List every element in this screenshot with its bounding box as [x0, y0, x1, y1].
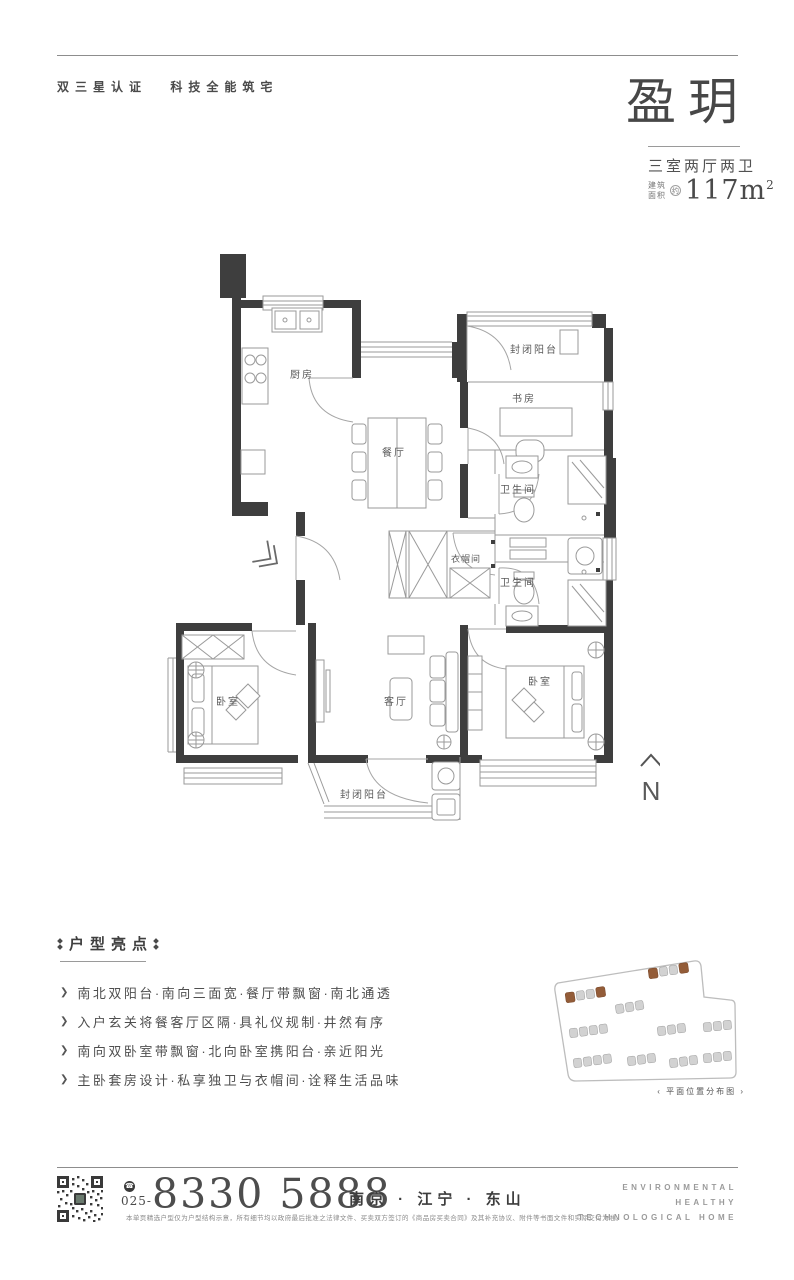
ornament-icon — [154, 939, 158, 949]
slogan-line: TECHNOLOGICAL HOME — [578, 1210, 737, 1225]
room-label-dining: 餐厅 — [382, 446, 406, 459]
dining-table — [352, 418, 442, 508]
area-row: 建筑 面积 约 117m2 — [648, 175, 775, 206]
slogan-block: ENVIRONMENTAL HEALTHY TECHNOLOGICAL HOME — [578, 1180, 737, 1225]
area-prefix: 建筑 面积 — [648, 181, 666, 201]
room-label-bedroom-right: 卧室 — [528, 675, 552, 688]
highlights-underline — [60, 961, 146, 962]
bullet-icon: ❯ — [60, 1045, 68, 1056]
closet-wardrobes — [389, 531, 490, 598]
room-label-bath-top: 卫生间 — [500, 483, 536, 496]
bedroom-left-furniture — [182, 635, 260, 748]
bathroom-fixtures — [491, 456, 606, 626]
title-divider — [648, 146, 740, 147]
qr-code — [57, 1176, 103, 1222]
disclaimer-text: 本单页精选户型仅为户型结构示意，所有细节均以政府最后批准之法律文件、买卖双方签订… — [126, 1212, 606, 1222]
highlight-item: ❯主卧套房设计·私享独卫与衣帽间·诠释生活品味 — [60, 1073, 401, 1086]
slogan-line: HEALTHY — [578, 1195, 737, 1210]
north-arrow-icon: N — [641, 755, 660, 806]
tagline: 双三星认证 科技全能筑宅 — [57, 78, 278, 95]
room-label-balcony-top: 封闭阳台 — [510, 343, 558, 356]
highlights-heading: 户型亮点 — [58, 933, 158, 954]
top-rule — [57, 55, 738, 56]
layout-subtitle: 三室两厅两卫 — [648, 155, 756, 176]
room-label-study: 书房 — [512, 392, 536, 405]
svg-text:N: N — [642, 776, 660, 806]
room-label-closet: 衣帽间 — [451, 553, 481, 564]
room-label-balcony-bottom: 封闭阳台 — [340, 788, 388, 801]
siteplan-caption: ‹ 平面位置分布图 › — [545, 1086, 745, 1097]
living-furniture — [316, 636, 458, 749]
highlights-list: ❯南北双阳台·南向三面宽·餐厅带飘窗·南北通透 ❯入户玄关将餐客厅区隔·具礼仪规… — [60, 986, 401, 1102]
location-text: 南京 · 江宁 · 东山 — [349, 1188, 526, 1209]
cert-label: 双三星认证 — [57, 80, 147, 94]
balcony-appliances — [432, 762, 460, 820]
entry-arrow-icon — [252, 541, 284, 574]
page-title: 盈玥 — [626, 62, 750, 134]
tech-label: 科技全能筑宅 — [170, 80, 278, 94]
phone-area-code: 025- — [121, 1194, 152, 1208]
bullet-icon: ❯ — [60, 987, 68, 998]
room-label-bedroom-left: 卧室 — [216, 695, 240, 708]
highlight-item: ❯南北双阳台·南向三面宽·餐厅带飘窗·南北通透 — [60, 986, 401, 999]
highlight-item: ❯入户玄关将餐客厅区隔·具礼仪规制·井然有序 — [60, 1015, 401, 1028]
bottom-rule — [57, 1167, 738, 1168]
ornament-icon — [58, 939, 62, 949]
room-label-living: 客厅 — [384, 695, 408, 708]
bedroom-right-furniture — [468, 642, 604, 750]
room-label-bath-bottom: 卫生间 — [500, 576, 536, 589]
kitchen-fixtures — [241, 308, 322, 474]
highlight-item: ❯南向双卧室带飘窗·北向卧室携阳台·亲近阳光 — [60, 1044, 401, 1057]
area-value: 117m2 — [685, 175, 775, 206]
poster-page: 双三星认证 科技全能筑宅 盈玥 三室两厅两卫 建筑 面积 约 117m2 — [0, 0, 794, 1280]
bullet-icon: ❯ — [60, 1074, 68, 1085]
slogan-line: ENVIRONMENTAL — [578, 1180, 737, 1195]
siteplan-map — [545, 953, 745, 1085]
phone-icon: ☎ — [124, 1181, 135, 1192]
approx-circle-icon: 约 — [670, 185, 681, 196]
floorplan-drawing: 厨房 餐厅 封闭阳台 书房 卫生间 卫生间 衣帽间 卧室 客厅 卧室 封闭阳台 … — [160, 250, 660, 850]
bullet-icon: ❯ — [60, 1016, 68, 1027]
room-label-kitchen: 厨房 — [290, 368, 314, 381]
